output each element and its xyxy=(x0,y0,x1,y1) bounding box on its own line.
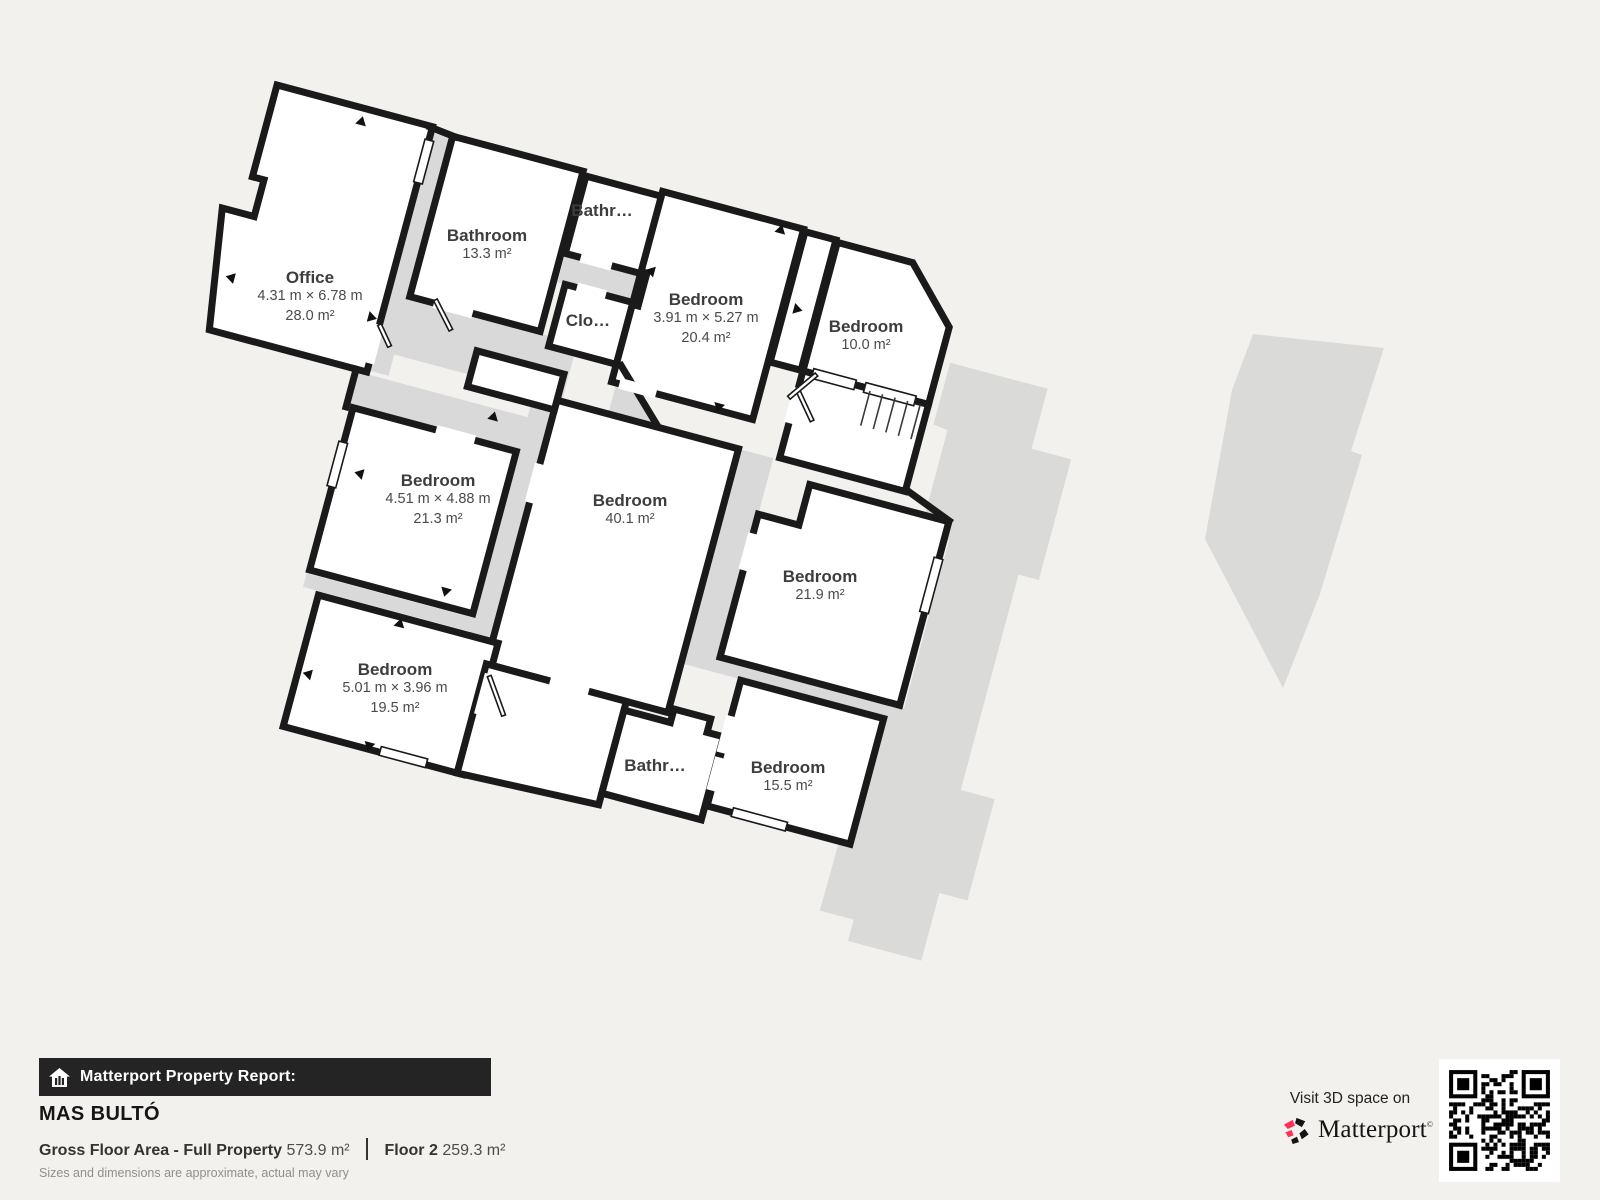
separator xyxy=(366,1138,368,1160)
visit-3d-cta: Visit 3D space on xyxy=(1255,1090,1445,1108)
matterport-logo-icon xyxy=(1281,1114,1312,1145)
matterport-report-page: Office 4.31 m × 6.78 m 28.0 m² Bathroom … xyxy=(0,0,1600,1200)
house-icon xyxy=(49,1068,70,1087)
disclaimer-text: Sizes and dimensions are approximate, ac… xyxy=(39,1166,349,1180)
visit-text: Visit 3D space on xyxy=(1290,1090,1410,1107)
floor-area-value: 259.3 m² xyxy=(442,1142,505,1159)
area-summary: Gross Floor Area - Full Property 573.9 m… xyxy=(39,1138,505,1160)
adjacent-structure-silhouette xyxy=(1205,334,1384,688)
floor-label: Floor 2 xyxy=(385,1142,438,1159)
report-title-bar: Matterport Property Report: xyxy=(39,1058,491,1096)
report-title: Matterport Property Report: xyxy=(80,1068,296,1086)
gross-area-value: 573.9 m² xyxy=(286,1142,349,1159)
property-name: MAS BULTÓ xyxy=(39,1103,160,1126)
matterport-brand: Matterport© xyxy=(1281,1114,1433,1145)
qr-code xyxy=(1439,1059,1560,1182)
brand-mark: © xyxy=(1427,1120,1433,1129)
rooms xyxy=(97,80,1013,880)
floor-plan-rotated-group xyxy=(81,80,1125,969)
floor-plan xyxy=(0,0,1600,1200)
matterport-wordmark: Matterport© xyxy=(1318,1116,1433,1144)
gross-area-label: Gross Floor Area - Full Property xyxy=(39,1142,282,1159)
